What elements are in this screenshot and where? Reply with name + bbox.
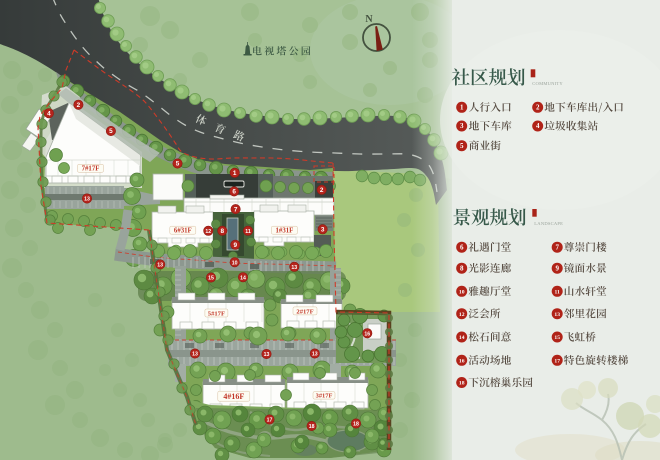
svg-text:13: 13 xyxy=(312,352,318,358)
svg-text:5: 5 xyxy=(460,142,464,150)
svg-text:10: 10 xyxy=(459,290,465,296)
svg-text:18: 18 xyxy=(353,422,359,428)
svg-text:16: 16 xyxy=(364,331,370,337)
svg-text:13: 13 xyxy=(554,312,560,318)
svg-text:4#16F: 4#16F xyxy=(223,392,244,401)
svg-text:18: 18 xyxy=(459,381,465,387)
svg-text:14: 14 xyxy=(240,275,246,281)
svg-text:7: 7 xyxy=(234,206,238,213)
svg-text:8: 8 xyxy=(221,228,225,235)
svg-text:LANDSCAPE: LANDSCAPE xyxy=(534,221,563,226)
svg-text:2#17F: 2#17F xyxy=(296,308,313,315)
svg-text:1: 1 xyxy=(460,104,464,112)
svg-text:5: 5 xyxy=(176,161,180,168)
svg-text:16: 16 xyxy=(459,359,465,365)
svg-text:1: 1 xyxy=(233,170,237,177)
svg-text:17: 17 xyxy=(267,418,273,424)
svg-text:N: N xyxy=(365,14,373,25)
svg-text:6#31F: 6#31F xyxy=(174,228,192,235)
svg-text:7#17F: 7#17F xyxy=(82,166,100,173)
svg-text:2: 2 xyxy=(320,187,324,194)
svg-text:13: 13 xyxy=(157,263,163,269)
svg-text:13: 13 xyxy=(264,352,270,358)
svg-text:9: 9 xyxy=(555,264,559,272)
svg-text:2: 2 xyxy=(536,104,540,112)
svg-text:13: 13 xyxy=(84,197,90,203)
svg-text:9: 9 xyxy=(234,242,238,249)
svg-text:15: 15 xyxy=(208,276,214,282)
svg-text:4: 4 xyxy=(536,122,540,130)
svg-text:COMMUNITY: COMMUNITY xyxy=(532,81,563,86)
svg-text:4: 4 xyxy=(47,110,51,117)
svg-text:1#31F: 1#31F xyxy=(276,228,294,235)
svg-text:3: 3 xyxy=(460,122,464,130)
svg-text:3#17F: 3#17F xyxy=(316,393,333,400)
svg-text:6: 6 xyxy=(460,243,464,251)
svg-text:15: 15 xyxy=(554,335,560,341)
svg-text:8: 8 xyxy=(460,264,464,272)
svg-text:3: 3 xyxy=(321,227,325,234)
svg-text:13: 13 xyxy=(291,265,297,271)
svg-text:18: 18 xyxy=(309,424,315,430)
svg-text:10: 10 xyxy=(232,260,238,266)
svg-text:6: 6 xyxy=(232,189,236,196)
svg-text:12: 12 xyxy=(459,312,465,318)
svg-text:7: 7 xyxy=(555,243,559,251)
svg-text:5: 5 xyxy=(109,128,113,135)
svg-text:5#17F: 5#17F xyxy=(208,310,225,317)
svg-text:11: 11 xyxy=(555,290,560,296)
svg-text:13: 13 xyxy=(192,352,198,358)
svg-text:12: 12 xyxy=(205,229,211,235)
svg-text:14: 14 xyxy=(459,335,465,341)
svg-text:17: 17 xyxy=(554,359,560,365)
svg-text:11: 11 xyxy=(245,229,251,235)
svg-text:2: 2 xyxy=(77,102,81,109)
